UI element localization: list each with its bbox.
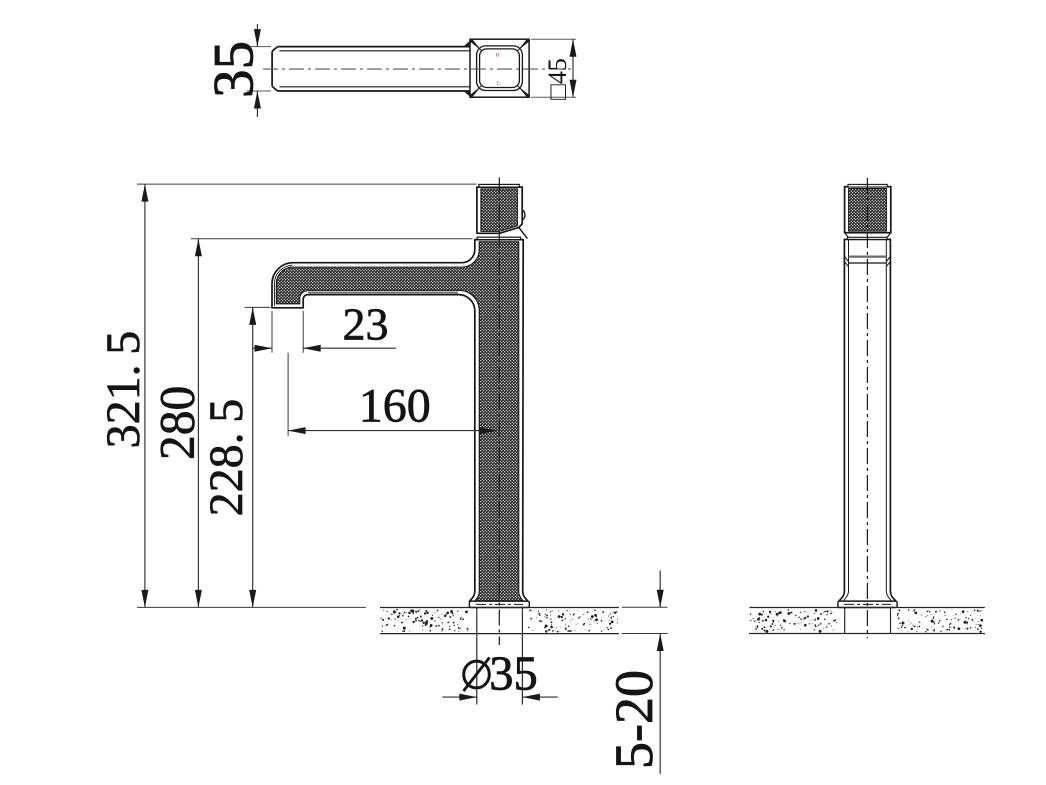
svg-text:H: H	[496, 52, 500, 58]
svg-text:228. 5: 228. 5	[200, 399, 253, 517]
svg-text:23: 23	[343, 299, 389, 350]
svg-text:□45: □45	[543, 58, 572, 100]
svg-text:5-20: 5-20	[604, 670, 664, 769]
svg-text:C: C	[497, 81, 501, 87]
svg-text:280: 280	[150, 386, 205, 460]
svg-text:35: 35	[489, 648, 538, 701]
svg-text:321. 5: 321. 5	[97, 331, 150, 449]
svg-text:35: 35	[203, 41, 266, 98]
svg-text:160: 160	[359, 379, 431, 432]
